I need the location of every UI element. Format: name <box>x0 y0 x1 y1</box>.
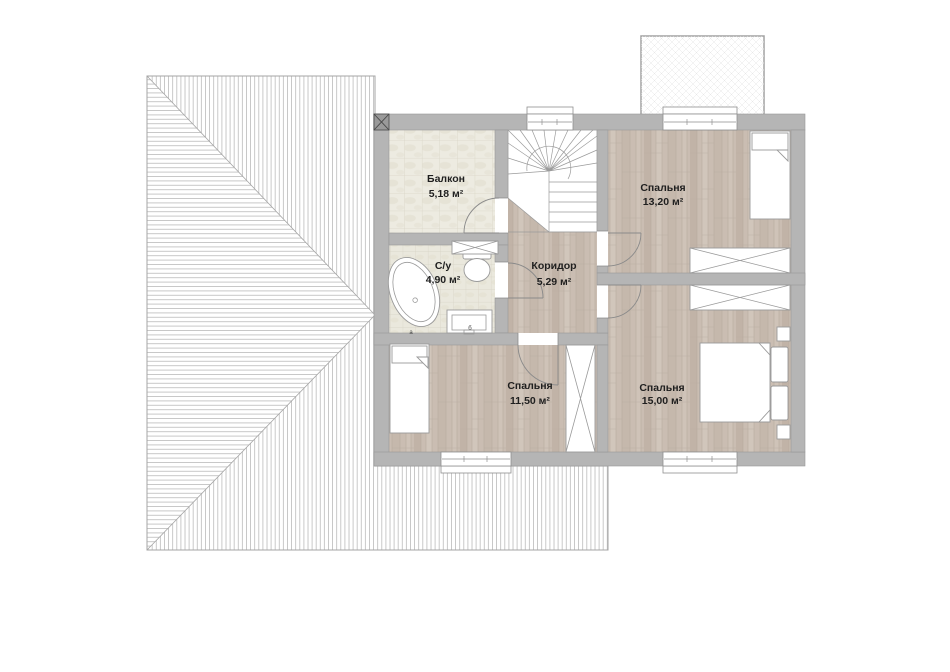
exterior-wall-top <box>374 114 805 130</box>
nightstand-bottom <box>777 425 790 439</box>
towel-rack <box>452 241 498 254</box>
wall-stub-lower <box>597 318 608 333</box>
chimney-outline <box>641 36 764 115</box>
wardrobe-bottom-right <box>690 285 790 310</box>
room-area-bedroom-bottom-left: 11,50 м² <box>510 395 550 407</box>
window-sill-bottom-left <box>441 466 511 473</box>
window-bottom-right <box>663 452 737 466</box>
wall-balcony-stairs <box>495 130 508 198</box>
room-area-bedroom-bottom-right: 15,00 м² <box>642 395 683 407</box>
room-label-bedroom-bottom-left: Спальня <box>507 380 552 392</box>
bed-single-bottom-left <box>390 344 429 433</box>
room-label-bedroom-top-right: Спальня <box>640 182 685 194</box>
window-stairs <box>527 114 573 130</box>
wall-corridor-bottom <box>558 333 608 345</box>
wall-between-right-bedrooms <box>597 273 805 285</box>
exterior-wall-right <box>791 130 805 452</box>
floor-plan-page: Балкон 5,18 м² С/у 4,90 м² Коридор 5,29 … <box>0 0 950 672</box>
wall-bedroom-divider <box>597 345 608 452</box>
wardrobe-top-right <box>690 248 790 273</box>
room-area-bathroom: 4,90 м² <box>426 274 461 286</box>
exterior-wall-left <box>374 130 389 466</box>
room-label-balcony: Балкон <box>427 173 465 185</box>
room-area-balcony: 5,18 м² <box>429 188 464 200</box>
window-top-right <box>663 114 737 130</box>
nightstand-top <box>777 327 790 341</box>
room-area-corridor: 5,29 м² <box>537 276 572 288</box>
room-area-bedroom-top-right: 13,20 м² <box>643 196 684 208</box>
room-label-corridor: Коридор <box>531 260 576 272</box>
wardrobe-bottom-left <box>566 345 595 452</box>
window-sill-bottom-right <box>663 466 737 473</box>
fixture-mark-sink: б <box>468 326 472 332</box>
wall-stub-upper <box>597 266 608 273</box>
bed-single-top-right <box>750 131 790 219</box>
wall-bathroom-corridor-lower <box>495 298 508 333</box>
wall-stairs-bedroom <box>597 130 608 231</box>
wall-corner-marker <box>374 114 389 130</box>
toilet <box>463 250 491 282</box>
window-sill-top-right <box>663 107 737 114</box>
wall-bathroom-bottom <box>374 333 518 345</box>
window-bottom-left <box>441 452 511 466</box>
floor-plan-svg: Балкон 5,18 м² С/у 4,90 м² Коридор 5,29 … <box>0 0 950 672</box>
exterior-wall-bottom <box>374 452 805 466</box>
window-sill-stairs <box>527 107 573 114</box>
room-label-bathroom: С/у <box>435 260 452 272</box>
room-label-bedroom-bottom-right: Спальня <box>639 382 684 394</box>
